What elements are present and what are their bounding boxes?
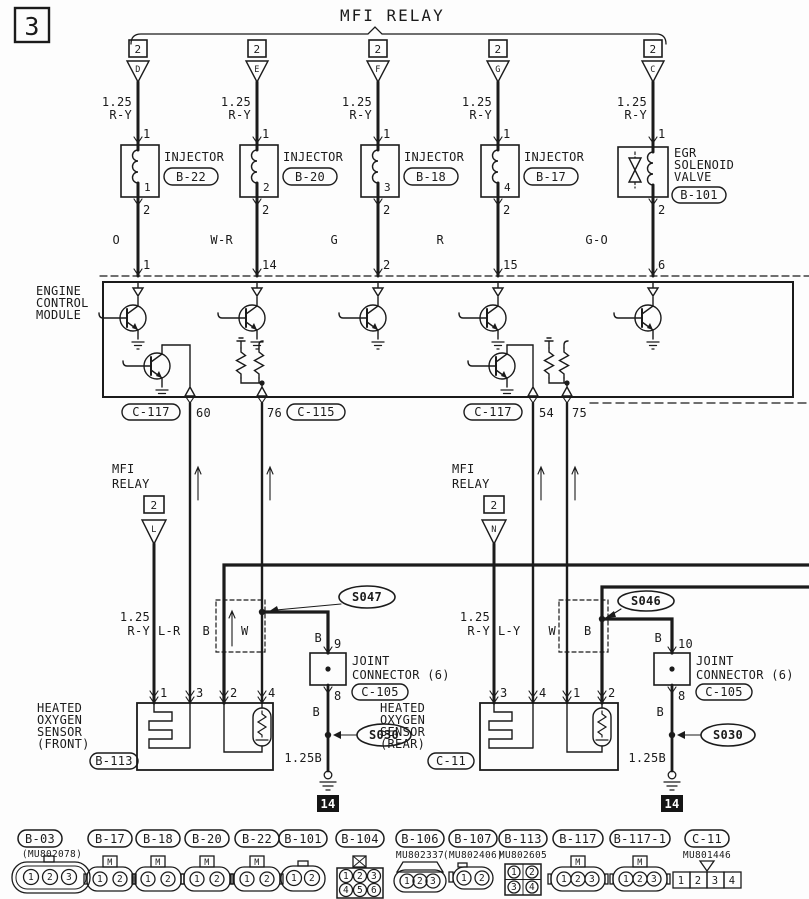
sensor-element-icon [149,703,190,748]
splice-arrowhead [677,731,685,739]
terminal-letter: F [375,65,380,75]
pin: 6 [371,885,377,896]
internal-pin: 2 [263,181,270,194]
wire-color: R-Y [467,624,490,638]
wire-size: 1.25B [628,751,666,765]
coil-icon [373,150,379,183]
pin: 3 [589,874,595,885]
relay-pin: 2 [491,499,498,512]
wire-color: B [654,631,662,645]
ecm-pin: 54 [539,406,554,420]
wiring-diagram: 3 MFI RELAY 2 D 1.25 R-Y 1 1 INJECTOR B-… [0,0,809,899]
engine-control-module: ENGINE CONTROL MODULE [36,276,809,397]
relay-pin: 2 [135,43,142,56]
connector-b101: B-101 1 2 [279,830,327,891]
coil-icon [133,150,139,183]
component-label: JOINT [352,654,390,668]
connector-code: B-106 [401,832,439,846]
wire-color: B [202,624,210,638]
coil-icon [252,150,258,183]
terminal-letter: N [491,525,496,535]
terminal-letter: C [650,65,655,75]
connector-b22: B-22 M 1 2 [231,830,283,891]
pin-number: 8 [334,689,342,703]
mfi-relay-tap-right: MFI RELAY 2 N [452,462,506,703]
pin: 1 [461,873,467,884]
connector-b104: B-104 1 2 3 4 5 6 [336,830,384,898]
relay-pin: 2 [151,499,158,512]
splice-arrow [276,604,341,610]
pin: 1 [511,867,517,878]
resistor-icon [560,348,569,378]
connector-code: B-101 [680,188,718,202]
direction-arrow [195,467,201,500]
junction-dot [564,380,569,385]
connector-code: B-17 [536,170,566,184]
heated-oxygen-sensor-front: 1 3 2 4 HEATED OXYGEN SENSOR (FRONT) B-1… [37,686,276,770]
connector-code: B-20 [192,832,222,846]
direction-arrow [267,467,273,500]
wire-color: G [330,233,338,247]
pin: 1 [97,874,103,885]
connector-b117-1: B-117-1 M 1 2 3 [610,830,670,891]
internal-pin: 1 [144,181,151,194]
page-title: MFI RELAY [340,6,445,25]
pin: 1 [28,872,34,883]
transistor-icon [339,297,386,349]
splice-s046: S046 [605,591,674,618]
wire-color: W-R [210,233,233,247]
component-label: INJECTOR [164,150,225,164]
pin-number: 4 [539,686,547,700]
pin: 2 [575,874,581,885]
pin: 2 [417,876,423,887]
connector-code: C-117 [132,405,170,419]
pin: 2 [214,874,220,885]
relay-pin: 2 [254,43,261,56]
connector-code: B-17 [95,832,125,846]
ecm-pin: 6 [658,258,666,272]
branch-injector-b22: 2 D 1.25 R-Y 1 1 INJECTOR B-22 2 O 1 [102,40,225,276]
junction-dot [669,666,674,671]
pin: 2 [47,872,53,883]
terminal-letter: G [495,65,500,75]
pin: 1 [623,874,629,885]
component-label: (FRONT) [37,737,90,751]
component-label: JOINT [696,654,734,668]
part-number: MU802337 [396,850,444,861]
relay-pin: 2 [650,43,657,56]
ecm-output [162,345,195,396]
part-number: (MU802406) [443,850,503,861]
transistor-icon [468,345,515,397]
pin-number: 9 [334,637,342,651]
wire-size: 1.25B [284,751,322,765]
pin: 3 [651,874,657,885]
connector-b113: B-113 MU802605 1 2 3 4 [499,830,547,895]
sensor-box [480,703,618,770]
pin: 2 [637,874,643,885]
ecm-pin: 60 [196,406,211,420]
transistor-icon [123,345,170,397]
pin: 2 [357,871,363,882]
wire-color: R-Y [624,108,647,122]
connector-code: C-105 [361,685,399,699]
wire-color: G-O [585,233,608,247]
pin: 3 [712,875,719,887]
ground-icon [320,771,336,790]
ecm-box [103,282,793,397]
ecm-pin: 15 [503,258,518,272]
wire-size: 1.25 [617,95,647,109]
connector-code: C-117 [474,405,512,419]
connector-strip: B-03 (MU802078) 1 2 3 B-17 M 1 2 B-18 [12,830,741,898]
connector-code: B-22 [242,832,272,846]
splice-label: S047 [352,590,382,604]
ecm-pin: 14 [262,258,277,272]
pin: 1 [244,874,250,885]
relay-label: RELAY [452,477,490,491]
connector-code: B-117 [559,832,597,846]
pin-number: 3 [196,686,204,700]
mfi-relay-header: MFI RELAY [131,6,666,44]
connector-code: B-113 [95,754,133,768]
splice-arrowhead [268,606,279,612]
pin-number: 2 [262,203,270,217]
wire-size: 1.25 [462,95,492,109]
pin-number: 3 [500,686,508,700]
connector-code: B-117-1 [614,832,667,846]
ground-icon [664,771,680,790]
connector-code: B-20 [295,170,325,184]
wire-size: 1.25 [120,610,150,624]
pin-number: 2 [230,686,238,700]
part-number: MU801446 [683,850,731,861]
pin-number: 2 [608,686,616,700]
pin: 2 [264,874,270,885]
splice-dot [669,732,675,738]
wire-size: 1.25 [221,95,251,109]
wiring-diagram-page: 3 MFI RELAY 2 D 1.25 R-Y 1 1 INJECTOR B-… [0,0,809,899]
pin: 1 [194,874,200,885]
resistor-icon [255,348,264,378]
sensor-wire-labels-right: 1.25 R-Y L-Y W B [460,610,592,638]
sensor-element-icon [489,703,533,748]
ground-ref: 14 [664,797,679,811]
connector-b18: B-18 M 1 2 [132,830,184,891]
pin: 2 [117,874,123,885]
relay-label: RELAY [112,477,150,491]
terminal-letter: E [254,65,259,75]
pin: 1 [561,874,567,885]
joint-connector-right: B 10 JOINT CONNECTOR (6) C-105 8 B S030 … [628,631,793,812]
pin-number: 1 [383,127,391,141]
splice-arrowhead [333,731,341,739]
wire-color: B [584,624,592,638]
pin-number: 4 [268,686,276,700]
junction-dot [325,666,330,671]
wire-color: R-Y [469,108,492,122]
pin: 1 [343,871,349,882]
transistor-icon [99,297,146,349]
pin-number: 8 [678,689,686,703]
pin-number: 2 [503,203,511,217]
connector-b107: B-107 (MU802406) 1 2 [443,830,503,889]
connector-code: C-11 [436,754,466,768]
connector-code: B-03 [25,832,55,846]
relay-label: MFI [112,462,135,476]
heated-oxygen-sensor-rear: 3 4 1 2 HEATED OXYGEN SENSOR (REAR) C-11 [380,686,618,770]
internal-pin: 3 [384,181,391,194]
wire-size: 1.25 [102,95,132,109]
resistor-icon [545,348,554,378]
pin-number: 1 [143,127,151,141]
pin: 3 [371,871,377,882]
mfi-relay-tap-left: MFI RELAY 2 L [112,462,166,703]
pin: 1 [291,873,297,884]
pin-number: 2 [143,203,151,217]
pin-number: 2 [658,203,666,217]
connector-code: C-105 [705,685,743,699]
component-label: VALVE [674,170,712,184]
coil-icon [648,152,654,185]
splice-label: S030 [713,728,743,742]
ecm-pin: 2 [383,258,391,272]
wire-size: 1.25 [342,95,372,109]
ecm-entry-terminals [133,282,658,296]
connector-code: B-107 [454,832,492,846]
connector-b106: B-106 MU802337 1 2 3 [394,830,446,892]
wire-size: 1.25 [460,610,490,624]
pin: 2 [529,867,535,878]
sheet-number-box: 3 [15,8,49,42]
junction-dot [259,380,264,385]
pin: 3 [430,876,436,887]
direction-arrow [572,467,578,500]
wire-color: B [656,705,664,719]
component-label: (REAR) [380,737,425,751]
ecm-output [549,378,572,396]
connector-c11: C-11 MU801446 1 2 3 4 [673,830,741,888]
pin: 4 [729,875,736,887]
splice-s047: S047 [268,586,395,612]
valve-icon [629,152,641,188]
internal-pin: 4 [504,181,511,194]
wire-color: W [241,624,249,638]
connector-code: B-22 [176,170,206,184]
wire-color: W [548,624,556,638]
connector-b117: B-117 M 1 2 3 [548,830,608,891]
sheet-number: 3 [24,12,39,41]
component-label: INJECTOR [524,150,585,164]
pin-number: 2 [383,203,391,217]
coil-icon [493,150,499,183]
pin: 3 [511,882,517,893]
pin: 2 [309,873,315,884]
connector-b03: B-03 (MU802078) 1 2 3 [12,830,90,893]
ecm-label: MODULE [36,308,81,322]
branch-egr-solenoid-valve: 2 C 1.25 R-Y 1 EGR SOLENOID VALVE B-101 … [585,40,734,276]
pin: 1 [145,874,151,885]
connector-b17: B-17 M 1 2 [84,830,136,891]
relay-label: MFI [452,462,475,476]
pin-number: 1 [503,127,511,141]
splice-dot [325,732,331,738]
pin-number: 1 [658,127,666,141]
wire-color: O [112,233,120,247]
sensor-wire-labels-left: 1.25 R-Y L-R B W [120,610,249,638]
component-label: CONNECTOR (6) [352,668,450,682]
connector-code: C-11 [692,832,722,846]
ecm-pin: 76 [267,406,282,420]
pin: 2 [479,873,485,884]
terminal-letter: D [135,65,140,75]
pin: 4 [343,885,349,896]
ecm-output [507,345,538,396]
connector-b20: B-20 M 1 2 [181,830,233,891]
wire-color: B [314,631,322,645]
pin: 5 [357,885,363,896]
transistor-icon [459,297,506,349]
part-number: MU802605 [499,850,547,861]
connector-code: B-18 [143,832,173,846]
pin: 2 [695,875,702,887]
heater-icon [593,708,611,746]
splice-arrowhead [605,611,616,618]
connector-code: B-18 [416,170,446,184]
ecm-pin: 75 [572,406,587,420]
resistor-feed [545,338,553,348]
heater-icon [253,708,271,746]
pin: 3 [66,872,72,883]
resistor-icon [237,348,246,378]
pin-number: 1 [262,127,270,141]
branch-injector-b18: 2 F 1.25 R-Y 1 3 INJECTOR B-18 2 G 2 [330,40,464,276]
pin-number: 1 [160,686,168,700]
pin-number: 10 [678,637,693,651]
component-label: INJECTOR [283,150,344,164]
direction-arrow [538,467,544,500]
wire-color: L-R [158,624,181,638]
wire-color: R-Y [349,108,372,122]
ecm-output-labels: C-117 60 76 C-115 C-117 54 75 [122,397,809,420]
connector-code: C-115 [297,405,335,419]
ground-ref: 14 [320,797,335,811]
wire-color: R-Y [127,624,150,638]
pin: 1 [678,875,685,887]
resistor-feed [237,338,245,348]
branch-injector-b20: 2 E 1.25 R-Y 1 2 INJECTOR B-20 2 W-R 14 [210,40,343,276]
component-label: INJECTOR [404,150,465,164]
relay-pin: 2 [495,43,502,56]
connector-code: B-104 [341,832,379,846]
terminal-letter: L [151,525,156,535]
transistor-icon [614,297,661,349]
pin: 4 [529,882,535,893]
pin: 2 [165,874,171,885]
wire-color: R-Y [228,108,251,122]
connector-code: B-113 [504,832,542,846]
part-number: (MU802078) [22,849,82,860]
splice-label: S046 [631,594,661,608]
wire-color: B [312,705,320,719]
wire-color: R [436,233,444,247]
component-label: CONNECTOR (6) [696,668,794,682]
wire-color: R-Y [109,108,132,122]
ecm-pin: 1 [143,258,151,272]
resistor-feed [564,341,568,348]
direction-arrow [229,611,235,646]
connector-code: B-101 [284,832,322,846]
wire-color: L-Y [498,624,521,638]
pin-number: 1 [573,686,581,700]
relay-pin: 2 [375,43,382,56]
pin: 1 [404,876,410,887]
brace [131,27,666,44]
